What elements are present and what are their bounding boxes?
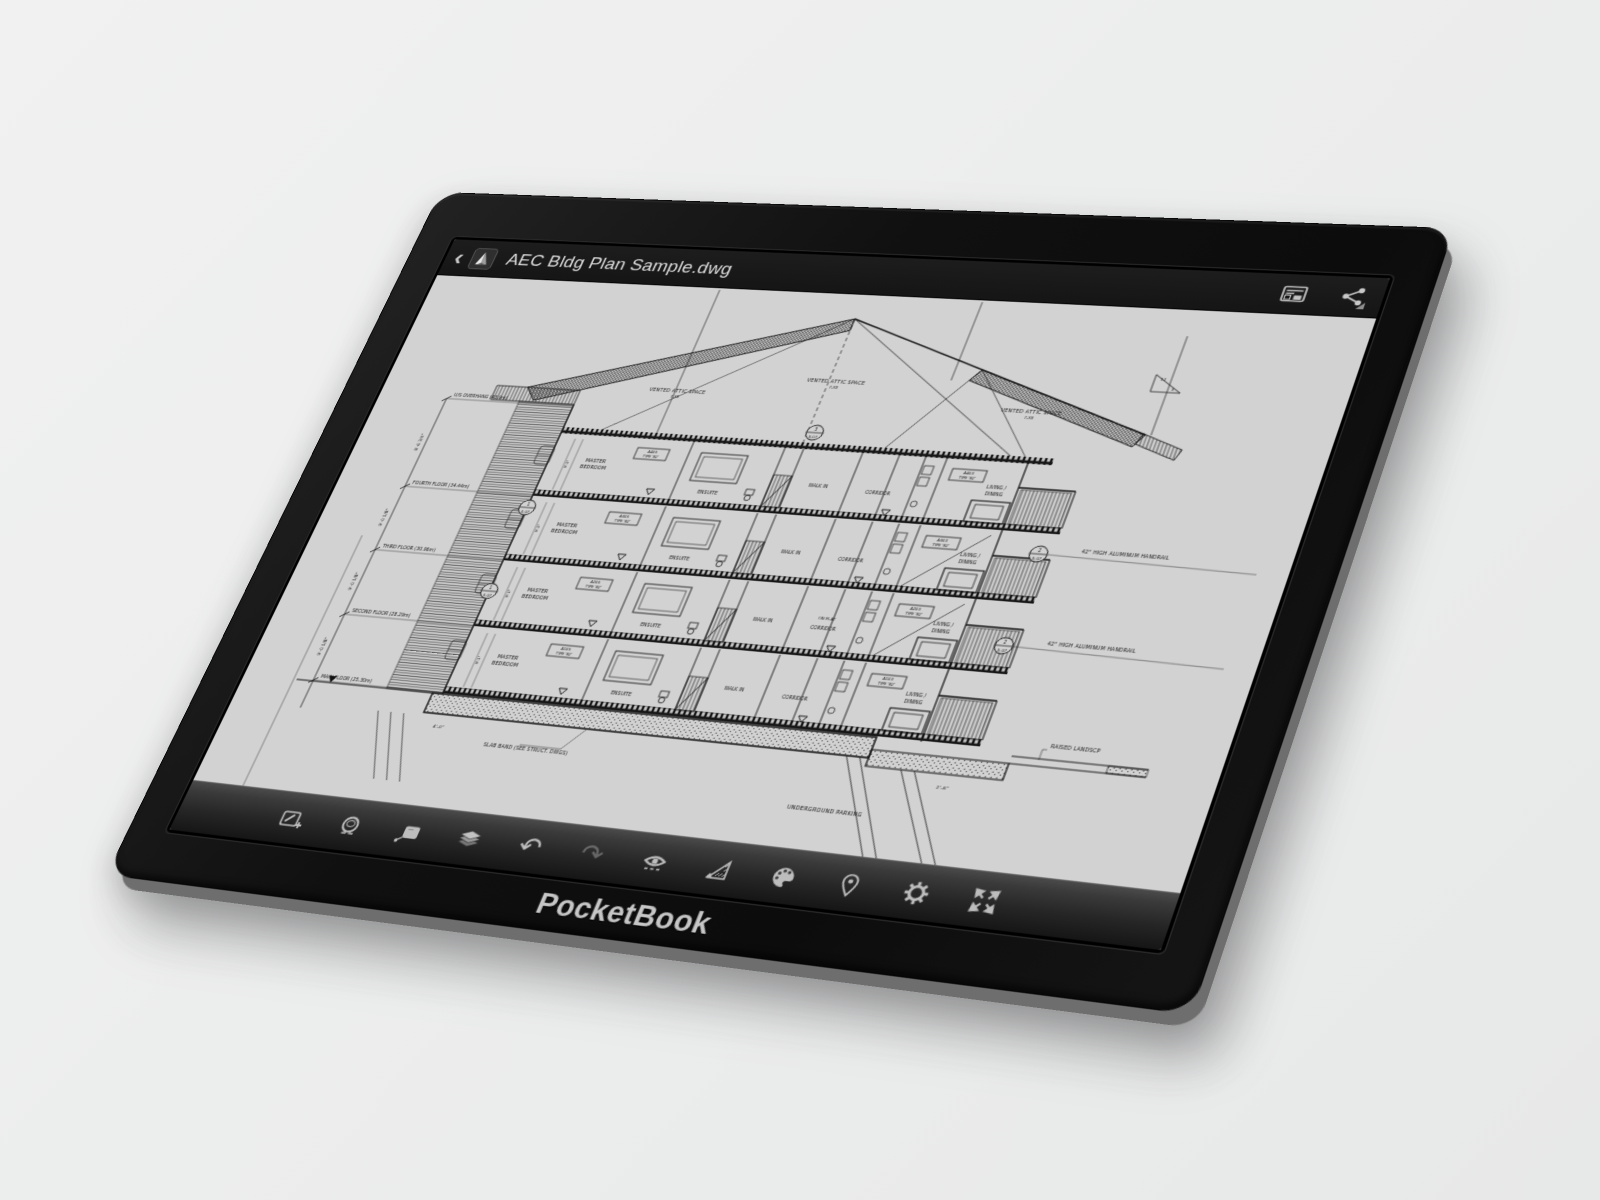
- share-icon[interactable]: [1334, 284, 1372, 310]
- svg-text:DINING: DINING: [931, 628, 951, 635]
- palette-icon[interactable]: [757, 857, 809, 898]
- svg-text:FOURTH FLOOR (34.44m): FOURTH FLOOR (34.44m): [411, 480, 470, 489]
- svg-text:CORRIDOR: CORRIDOR: [781, 695, 808, 702]
- svg-text:MASTER: MASTER: [526, 587, 549, 595]
- visibility-icon[interactable]: [629, 842, 680, 882]
- pin-icon[interactable]: [823, 865, 875, 906]
- annotate-add-icon[interactable]: [267, 801, 316, 839]
- svg-text:DINING: DINING: [984, 491, 1004, 498]
- svg-text:SLAB BAND (SEE STRUCT. DWGS): SLAB BAND (SEE STRUCT. DWGS): [482, 742, 569, 757]
- svg-text:9'-1": 9'-1": [474, 655, 482, 664]
- svg-text:9'-1": 9'-1": [534, 524, 542, 533]
- loupe-icon[interactable]: [325, 807, 374, 845]
- svg-text:ENSUITE: ENSUITE: [696, 489, 719, 496]
- sheet-preview-icon[interactable]: [1275, 281, 1313, 306]
- page-background: ‹ AEC Bldg Plan Sample.dwg: [0, 0, 1600, 1200]
- svg-text:ENSUITE: ENSUITE: [668, 555, 691, 562]
- svg-text:LIVING /: LIVING /: [986, 484, 1008, 491]
- layers-icon[interactable]: [444, 821, 494, 860]
- svg-text:42" HIGH ALUMINUM HANDRAIL: 42" HIGH ALUMINUM HANDRAIL: [1046, 641, 1137, 655]
- building-section-drawing: MASTERBEDROOMENSUITEWALK INCORRIDORLIVIN…: [193, 275, 1376, 893]
- svg-text:MASTER: MASTER: [555, 522, 578, 530]
- svg-text:WALK IN: WALK IN: [723, 685, 745, 693]
- svg-text:WALK IN: WALK IN: [780, 549, 802, 556]
- svg-text:CORRIDOR: CORRIDOR: [864, 490, 891, 496]
- svg-text:9'-0 1/8": 9'-0 1/8": [377, 508, 391, 526]
- tablet-screen: ‹ AEC Bldg Plan Sample.dwg: [169, 239, 1390, 950]
- svg-text:8'-6 3/4": 8'-6 3/4": [413, 433, 427, 451]
- svg-text:DINING: DINING: [958, 559, 978, 566]
- svg-text:9'-1": 9'-1": [504, 589, 512, 598]
- undo-icon[interactable]: ↶: [505, 828, 555, 867]
- document-title: AEC Bldg Plan Sample.dwg: [503, 250, 736, 279]
- svg-text:LIVING /: LIVING /: [959, 552, 982, 559]
- svg-text:4'-0": 4'-0": [432, 724, 445, 730]
- dwg-canvas[interactable]: MASTERBEDROOMENSUITEWALK INCORRIDORLIVIN…: [193, 275, 1376, 893]
- svg-text:7-XX: 7-XX: [1023, 416, 1035, 421]
- svg-text:7-XX: 7-XX: [828, 385, 840, 390]
- measure-icon[interactable]: [693, 850, 745, 890]
- svg-text:ON FLAT: ON FLAT: [817, 616, 837, 622]
- svg-text:CORRIDOR: CORRIDOR: [837, 557, 864, 563]
- svg-text:2'-6": 2'-6": [935, 785, 949, 791]
- svg-text:7-XX: 7-XX: [670, 395, 681, 400]
- svg-text:3: 3: [1170, 388, 1175, 392]
- svg-text:ENSUITE: ENSUITE: [639, 622, 662, 629]
- svg-text:9'-0 1/8": 9'-0 1/8": [347, 572, 361, 590]
- svg-text:DINING: DINING: [903, 698, 923, 706]
- svg-text:12: 12: [1160, 377, 1168, 382]
- svg-text:RAISED LANDSCP: RAISED LANDSCP: [1050, 743, 1102, 754]
- svg-text:MASTER: MASTER: [584, 458, 607, 466]
- svg-text:VENTED ATTIC SPACE: VENTED ATTIC SPACE: [806, 377, 866, 385]
- settings-icon[interactable]: [890, 873, 943, 914]
- svg-text:WALK IN: WALK IN: [807, 482, 829, 489]
- svg-text:WALK IN: WALK IN: [752, 616, 774, 623]
- svg-text:9'-0 1/8": 9'-0 1/8": [316, 637, 330, 656]
- svg-text:ENSUITE: ENSUITE: [610, 690, 633, 698]
- svg-text:5.07: 5.07: [808, 435, 818, 440]
- fullscreen-icon[interactable]: [958, 880, 1011, 922]
- cad-app-icon[interactable]: [465, 247, 501, 271]
- svg-text:THIRD FLOOR (30.96m): THIRD FLOOR (30.96m): [380, 544, 437, 554]
- svg-text:UNDERGROUND PARKING: UNDERGROUND PARKING: [786, 804, 864, 819]
- svg-text:SECOND FLOOR (28.29m): SECOND FLOOR (28.29m): [351, 608, 412, 619]
- svg-text:5.07: 5.07: [1031, 556, 1042, 561]
- svg-text:CORRIDOR: CORRIDOR: [809, 625, 836, 632]
- note-icon[interactable]: [384, 814, 434, 852]
- pocketbook-tablet: ‹ AEC Bldg Plan Sample.dwg: [106, 192, 1454, 1015]
- svg-text:9'-1": 9'-1": [563, 460, 571, 469]
- svg-text:5.07: 5.07: [996, 648, 1007, 653]
- redo-icon[interactable]: ↷: [566, 835, 617, 874]
